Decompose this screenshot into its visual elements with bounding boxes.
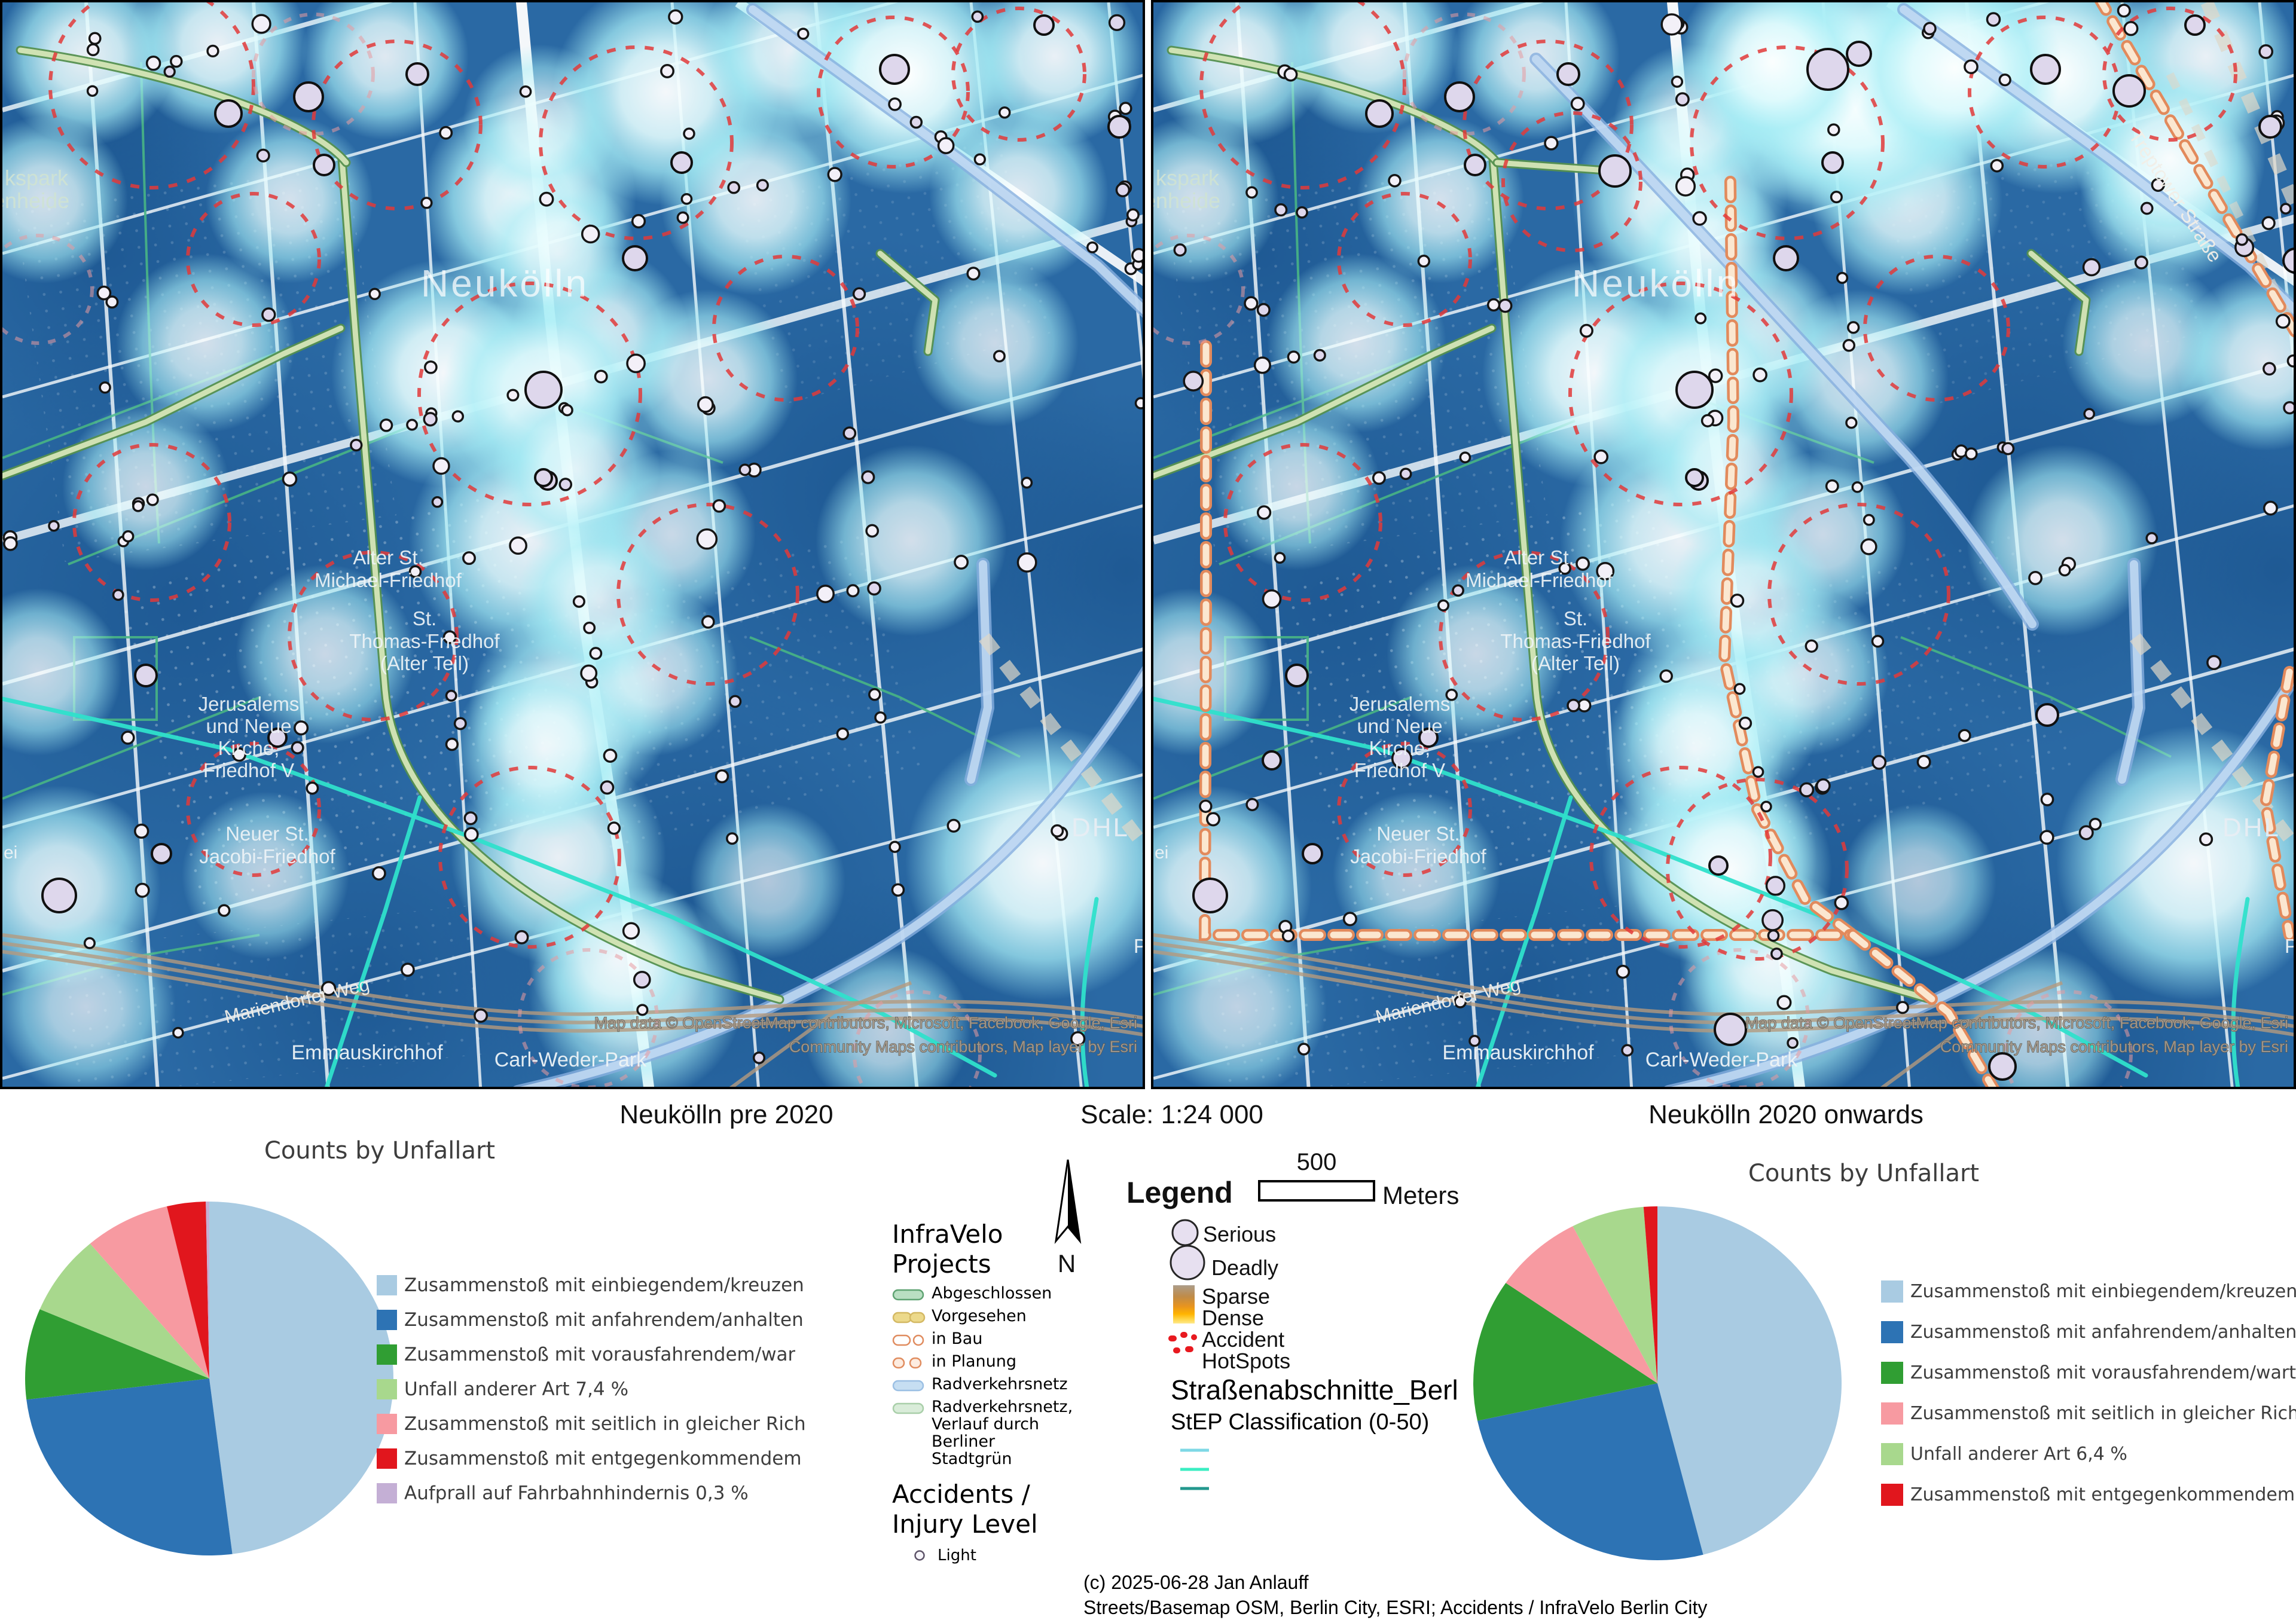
deadly-label: Deadly	[1211, 1255, 1278, 1280]
legend-item-label: Zusammenstoß mit seitlich in gleicher Ri…	[404, 1413, 806, 1435]
credits-line1: (c) 2025-06-28 Jan Anlauff	[1083, 1570, 1707, 1595]
map-label: Jacobi-Friedhof	[199, 845, 335, 867]
map-label: enheide	[1153, 188, 1220, 213]
legend-item-label: Zusammenstoß mit entgegenkommendem Fahr	[1910, 1484, 2296, 1505]
infravelo-item-label: Abgeschlossen	[932, 1285, 1060, 1302]
inplanung-line-icon	[892, 1356, 926, 1370]
infravelo-item-label: Radverkehrsnetz, Verlauf durch Berliner …	[932, 1398, 1060, 1468]
map-label: kspark	[1156, 166, 1220, 190]
map-layout-page: ksparkenheideNeuköllnAlter St.Michael-Fr…	[0, 0, 2296, 1623]
legend-item: Aufprall auf Fahrbahnhindernis 0,3 %	[377, 1476, 806, 1511]
light-injury-icon	[912, 1548, 927, 1563]
color-swatch	[1881, 1280, 1903, 1303]
color-swatch	[377, 1275, 397, 1295]
map-label: Jerusalems	[1349, 693, 1451, 715]
map-label: Neuer St.	[225, 823, 309, 845]
north-label: N	[1048, 1249, 1086, 1278]
map-label: (Alter Teil)	[1531, 652, 1620, 674]
color-swatch	[377, 1344, 397, 1365]
map-label: Kirche,	[218, 737, 280, 759]
legend-item: Unfall anderer Art 7,4 %	[377, 1372, 806, 1407]
legend-item: Zusammenstoß mit entgegenkommendem Fahr	[1881, 1474, 2296, 1515]
infravelo-item-vorgesehen: Vorgesehen	[892, 1307, 1089, 1325]
infravelo-item-radnetz: Radverkehrsnetz	[892, 1376, 1089, 1393]
density-gradient-swatch	[1173, 1285, 1195, 1324]
strassenabschnitte-title: Straßenabschnitte_Berl	[1171, 1374, 1458, 1406]
map-label: Neukölln	[421, 262, 589, 305]
infravelo-item-inbau: in Bau	[892, 1330, 1089, 1347]
map-attribution: Community Maps contributors, Map layer b…	[789, 1038, 1137, 1056]
light-injury-label: Light	[938, 1546, 976, 1564]
pie-slice	[26, 1379, 232, 1555]
vorgesehen-line-icon	[892, 1310, 926, 1325]
map-label: St.	[1564, 607, 1587, 629]
step-class-lines	[1179, 1444, 1215, 1499]
color-swatch	[1881, 1321, 1903, 1343]
infravelo-item-radgruen: Radverkehrsnetz, Verlauf durch Berliner …	[892, 1398, 1089, 1468]
legend-item-label: Aufprall auf Fahrbahnhindernis 0,3 %	[404, 1483, 749, 1504]
injury-light-row: Light	[912, 1546, 1089, 1564]
map-label: Thomas-Friedhof	[1500, 630, 1651, 652]
infravelo-items: AbgeschlossenVorgesehenin Bauin PlanungR…	[892, 1285, 1089, 1468]
color-swatch	[377, 1483, 397, 1503]
map-label: Thomas-Friedhof	[349, 630, 500, 652]
abgeschlossen-line-icon	[892, 1288, 926, 1302]
legend-item: Zusammenstoß mit anfahrendem/anhaltendem…	[1881, 1312, 2296, 1352]
map-label: ei	[4, 843, 17, 863]
legend-item: Zusammenstoß mit seitlich in gleicher Ri…	[377, 1407, 806, 1441]
color-swatch	[1881, 1484, 1903, 1506]
color-swatch	[377, 1310, 397, 1330]
map-label: Carl-Weder-Park	[494, 1049, 647, 1071]
right-map-caption: Neukölln 2020 onwards	[1547, 1100, 2025, 1130]
color-swatch	[1881, 1443, 1903, 1465]
map-label: Michael-Friedhof	[315, 569, 462, 591]
right-pie-legend: Zusammenstoß mit einbiegendem/kreuzendem…	[1881, 1271, 2296, 1515]
legend-item: Zusammenstoß mit einbiegendem/kreuzendem	[1881, 1271, 2296, 1312]
pie-slice	[209, 1202, 393, 1554]
scalebar	[1258, 1180, 1375, 1202]
radnetz-line-icon	[892, 1379, 926, 1393]
map-label: kspark	[5, 166, 69, 190]
legend-item: Zusammenstoß mit vorausfahrendem/war	[377, 1337, 806, 1372]
map-neukoelln-pre-2020: ksparkenheideNeuköllnAlter St.Michael-Fr…	[0, 0, 1145, 1089]
credits: (c) 2025-06-28 Jan Anlauff Streets/Basem…	[1083, 1570, 1707, 1620]
legend-item-label: Zusammenstoß mit einbiegendem/kreuzendem	[1910, 1281, 2296, 1302]
accidents-title-line2: Injury Level	[892, 1509, 1089, 1539]
left-map-caption: Neukölln pre 2020	[487, 1100, 966, 1130]
scalebar-value: 500	[1258, 1149, 1375, 1176]
map-label: Alter St.	[353, 546, 423, 568]
map-neukoelln-2020-onwards: ksparkenheideNeuköllnAlter St.Michael-Fr…	[1151, 0, 2296, 1089]
legend-item-label: Zusammenstoß mit seitlich in gleicher Ri…	[1910, 1403, 2296, 1424]
map-label: Friedhof V	[1354, 759, 1445, 781]
infravelo-item-label: Radverkehrsnetz	[932, 1376, 1060, 1393]
legend-item-label: Zusammenstoß mit vorausfahrendem/wartend…	[1910, 1362, 2296, 1383]
color-swatch	[377, 1379, 397, 1399]
map-label: Michael-Friedhof	[1465, 569, 1613, 591]
infravelo-item-label: Vorgesehen	[932, 1307, 1060, 1325]
north-arrow-icon	[1051, 1157, 1085, 1247]
map-attribution: Community Maps contributors, Map layer b…	[1940, 1038, 2288, 1056]
step-classification-subtitle: StEP Classification (0-50)	[1171, 1410, 1429, 1435]
legend-item-label: Unfall anderer Art 7,4 %	[404, 1379, 628, 1400]
map-label: Emmauskirchhof	[291, 1041, 443, 1064]
legend-item-label: Zusammenstoß mit vorausfahrendem/war	[404, 1344, 795, 1365]
legend-item: Zusammenstoß mit vorausfahrendem/wartend…	[1881, 1352, 2296, 1393]
map-label: und Neue	[1357, 715, 1442, 737]
legend-item-label: Unfall anderer Art 6,4 %	[1910, 1444, 2127, 1465]
map-label: Jerusalems	[199, 693, 300, 715]
infravelo-item-label: in Bau	[932, 1330, 1060, 1347]
map-label: Alter St.	[1504, 546, 1574, 568]
map-label: Jacobi-Friedhof	[1350, 845, 1486, 867]
legend-item-label: Zusammenstoß mit entgegenkommendem	[404, 1448, 802, 1469]
right-pie-title: Counts by Unfallart	[1625, 1160, 2103, 1187]
map-label: Neuer St.	[1376, 823, 1460, 845]
map-attribution: Map data © OpenStreetMap contributors, M…	[1745, 1014, 2288, 1032]
map-label: (Alter Teil)	[380, 652, 469, 674]
color-swatch	[377, 1414, 397, 1434]
legend-item-label: Zusammenstoß mit anfahrendem/anhaltendem…	[1910, 1322, 2296, 1343]
legend-item: Zusammenstoß mit seitlich in gleicher Ri…	[1881, 1393, 2296, 1434]
left-pie-title: Counts by Unfallart	[141, 1137, 619, 1164]
serious-label: Serious	[1203, 1222, 1276, 1247]
deadly-injury-icon	[1168, 1243, 1207, 1282]
radgruen-line-icon	[892, 1401, 926, 1416]
color-swatch	[1881, 1362, 1903, 1384]
map-label: DHL	[1071, 813, 1129, 842]
legend-item: Zusammenstoß mit einbiegendem/kreuzen	[377, 1268, 806, 1303]
map-label: Friedhof V	[203, 759, 294, 781]
color-swatch	[1881, 1402, 1903, 1425]
map-label: ei	[1155, 843, 1168, 863]
pie-chart-2020-onwards	[1466, 1198, 1849, 1572]
infravelo-item-abgeschlossen: Abgeschlossen	[892, 1285, 1089, 1302]
map-label: Phi	[2285, 935, 2296, 957]
scale-text: Scale: 1:24 000	[993, 1100, 1351, 1130]
legend-item: Zusammenstoß mit anfahrendem/anhalten	[377, 1303, 806, 1337]
scalebar-unit: Meters	[1382, 1181, 1459, 1210]
legend-item: Zusammenstoß mit entgegenkommendem	[377, 1441, 806, 1476]
legend-title: Legend	[1126, 1175, 1233, 1210]
map-label: Neukölln	[1572, 262, 1740, 305]
map-label: Phi	[1134, 935, 1145, 957]
hotspot-label-line2: HotSpots	[1202, 1349, 1290, 1374]
left-pie-legend: Zusammenstoß mit einbiegendem/kreuzenZus…	[377, 1268, 806, 1511]
color-swatch	[377, 1448, 397, 1469]
map-label: Kirche,	[1369, 737, 1431, 759]
accidents-title-line1: Accidents /	[892, 1480, 1089, 1509]
inbau-line-icon	[892, 1333, 926, 1347]
pie-chart-pre-2020	[18, 1193, 401, 1567]
map-label: St.	[413, 607, 436, 629]
map-label: Carl-Weder-Park	[1645, 1049, 1798, 1071]
map-label: enheide	[2, 188, 69, 213]
infravelo-item-label: in Planung	[932, 1353, 1060, 1370]
legend-item-label: Zusammenstoß mit anfahrendem/anhalten	[404, 1309, 804, 1331]
legend-item-label: Zusammenstoß mit einbiegendem/kreuzen	[404, 1274, 804, 1296]
hotspot-swatch-icon	[1168, 1331, 1199, 1357]
credits-line2: Streets/Basemap OSM, Berlin City, ESRI; …	[1083, 1595, 1707, 1620]
map-attribution: Map data © OpenStreetMap contributors, M…	[594, 1014, 1137, 1032]
infravelo-item-inplanung: in Planung	[892, 1353, 1089, 1370]
map-label: Emmauskirchhof	[1442, 1041, 1594, 1064]
legend-item: Unfall anderer Art 6,4 %	[1881, 1434, 2296, 1474]
map-label: DHL	[2222, 813, 2280, 842]
map-label: und Neue	[206, 715, 291, 737]
